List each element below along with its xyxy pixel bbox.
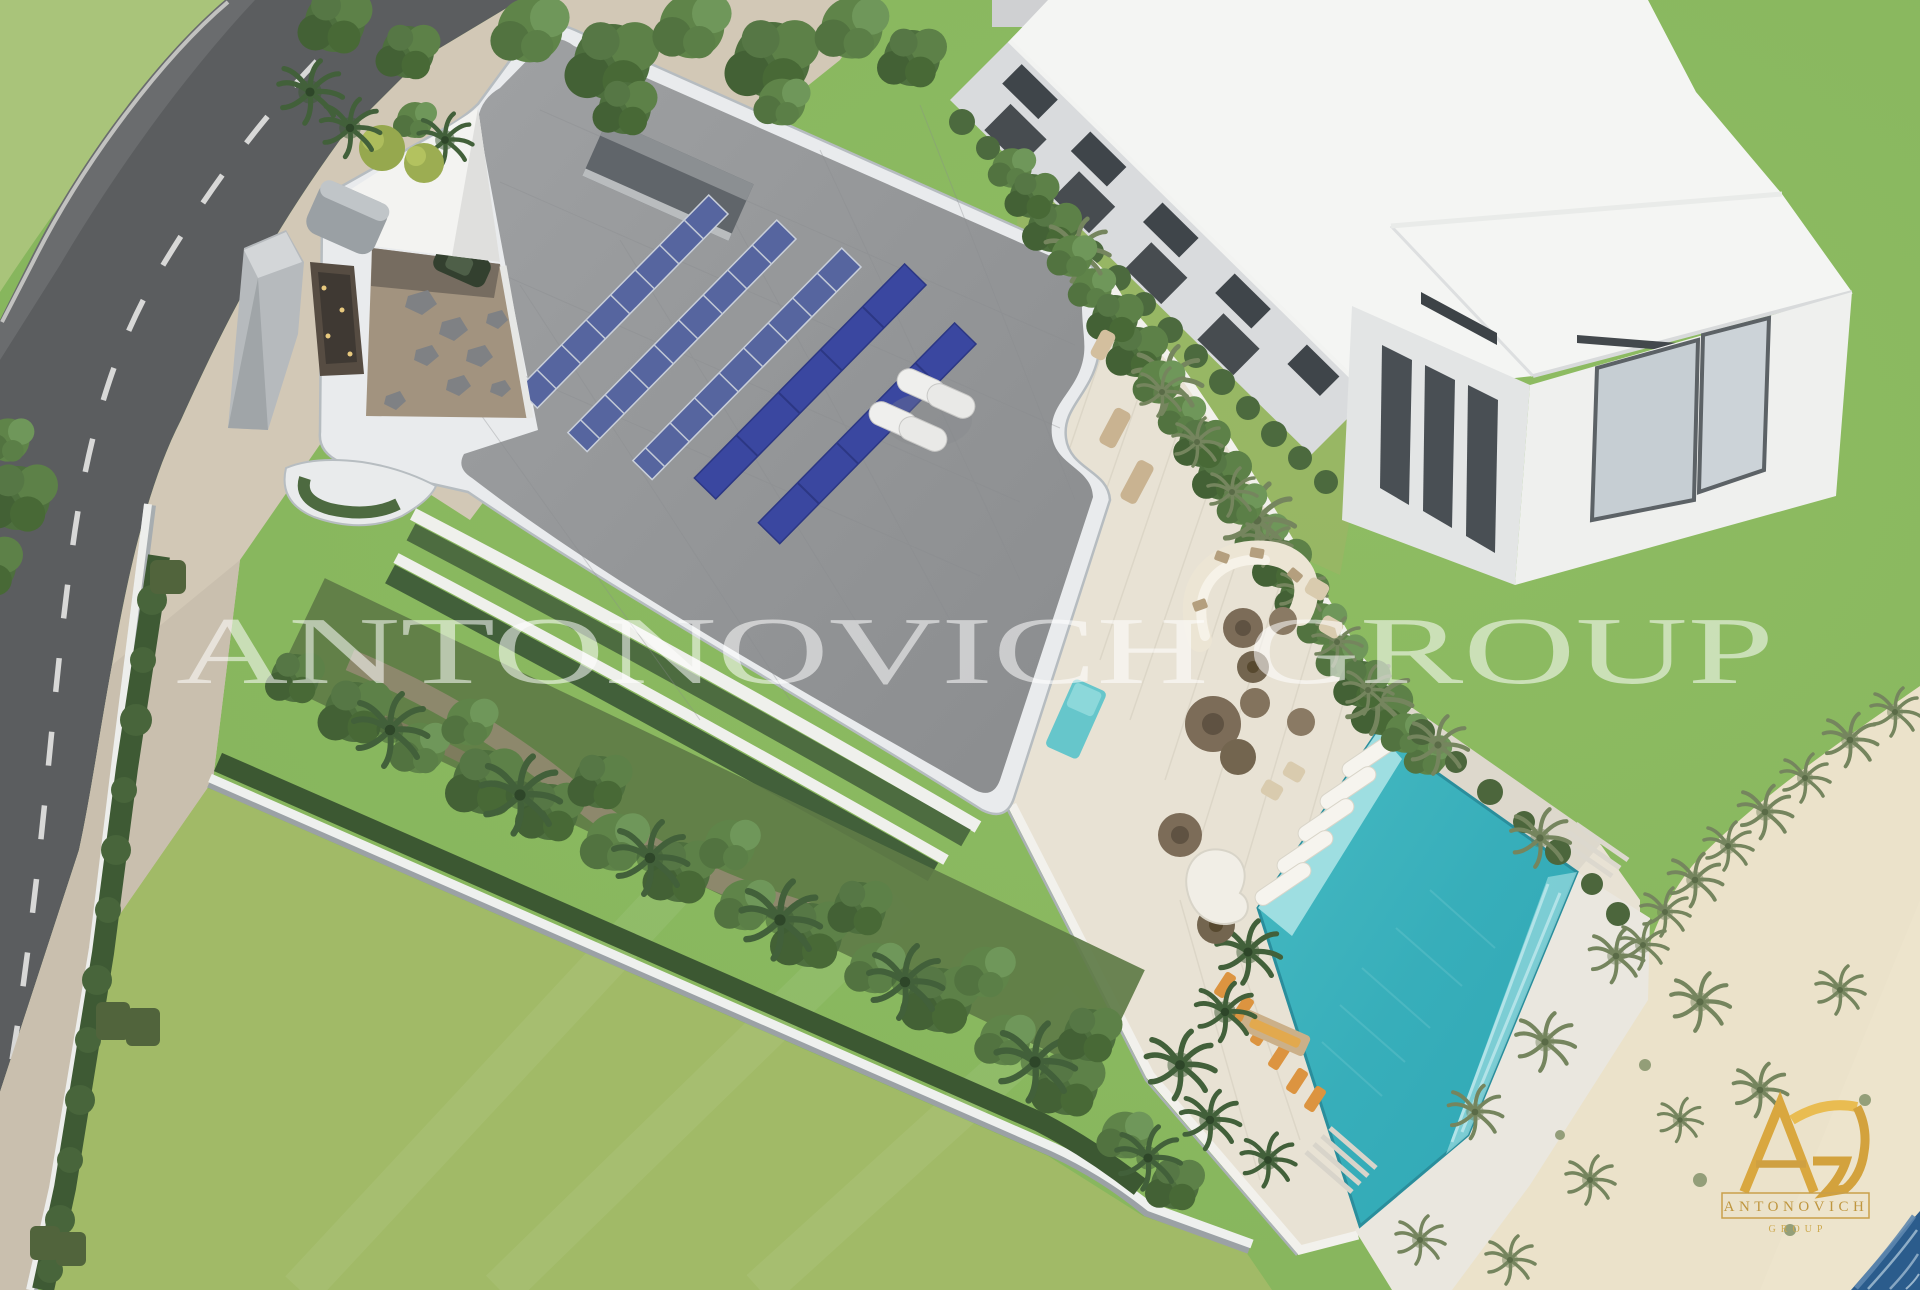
svg-text:GROUP: GROUP <box>1769 1224 1828 1235</box>
svg-text:ANTONOVICH: ANTONOVICH <box>1724 1199 1869 1215</box>
svg-text:ANTONOVICH GROUP: ANTONOVICH GROUP <box>176 597 1774 704</box>
